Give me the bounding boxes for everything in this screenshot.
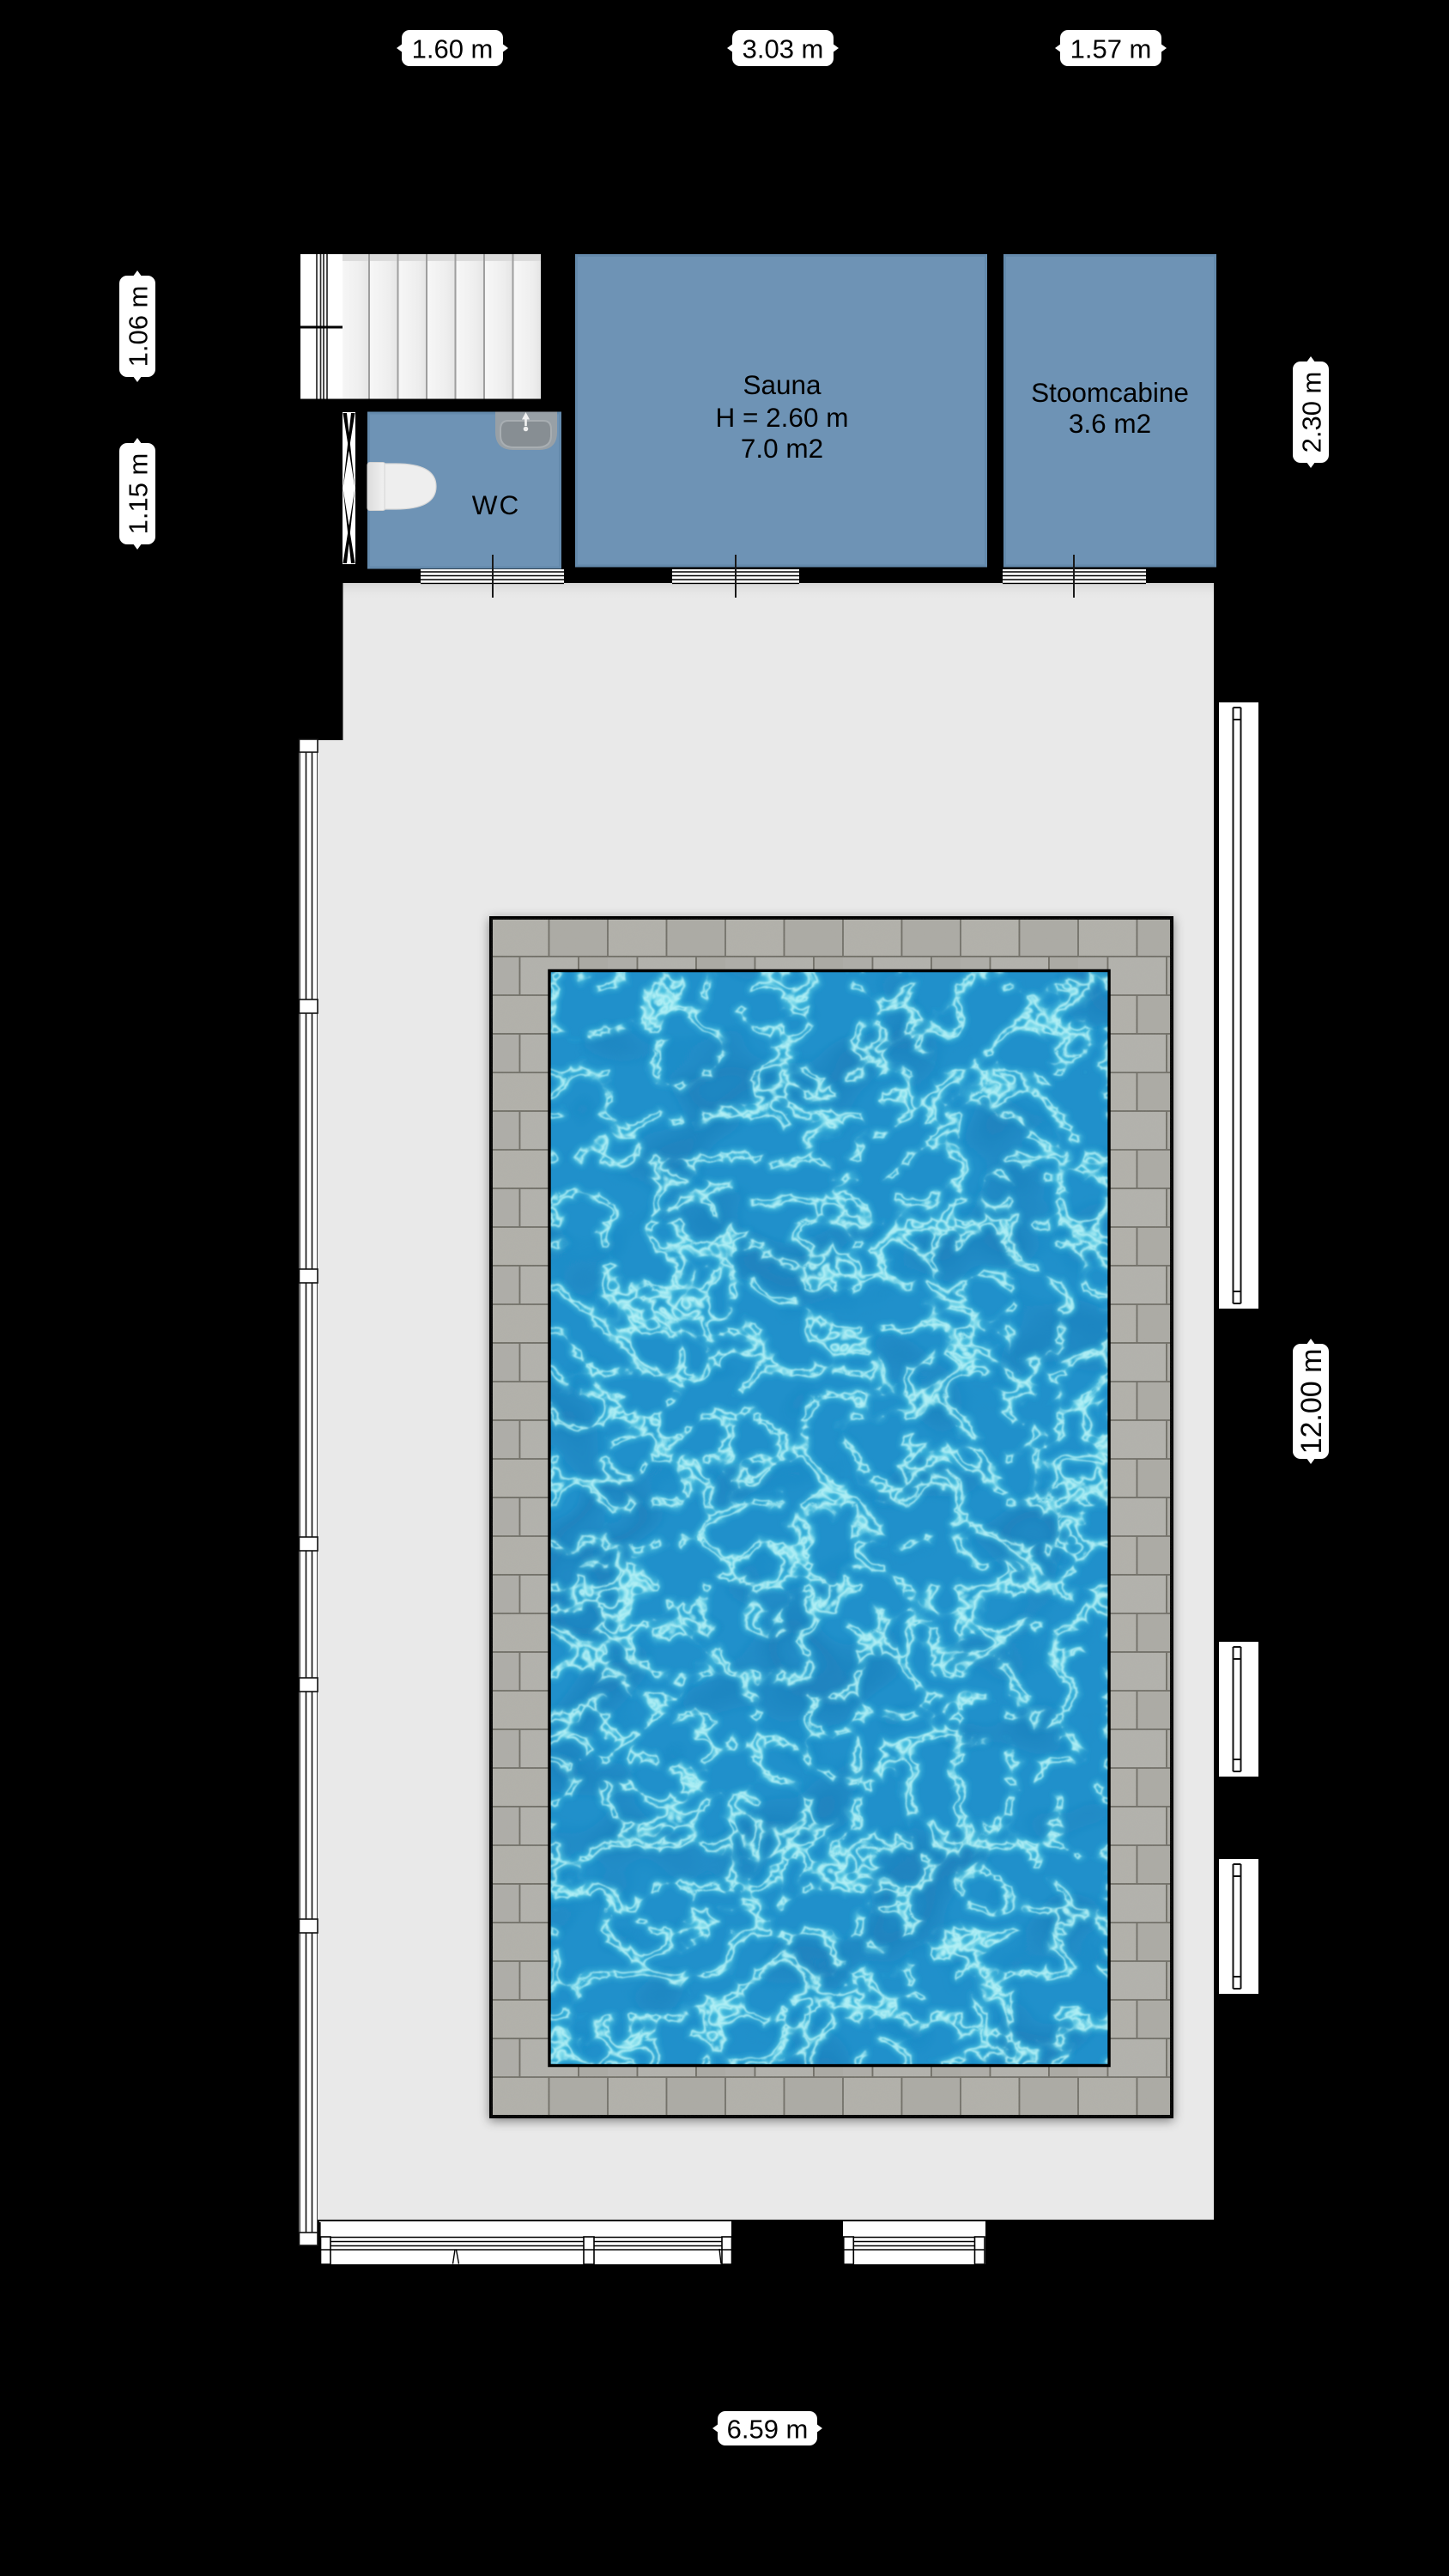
- svg-text:1.60 m: 1.60 m: [412, 34, 494, 64]
- svg-text:1.15 m: 1.15 m: [124, 453, 154, 535]
- svg-text:3.03 m: 3.03 m: [743, 34, 824, 64]
- svg-text:1.06 m: 1.06 m: [124, 286, 154, 368]
- svg-text:6.59 m: 6.59 m: [727, 2415, 809, 2445]
- svg-text:WC: WC: [472, 489, 520, 520]
- svg-text:Stoomcabine: Stoomcabine: [1031, 377, 1189, 408]
- svg-text:2.30 m: 2.30 m: [1297, 372, 1327, 453]
- svg-text:12.00 m: 12.00 m: [1295, 1349, 1328, 1455]
- svg-text:7.0 m2: 7.0 m2: [741, 433, 823, 464]
- svg-text:H = 2.60 m: H = 2.60 m: [716, 402, 849, 433]
- svg-text:Sauna: Sauna: [743, 369, 822, 400]
- svg-text:3.6 m2: 3.6 m2: [1069, 408, 1151, 439]
- svg-text:1.57 m: 1.57 m: [1070, 34, 1152, 64]
